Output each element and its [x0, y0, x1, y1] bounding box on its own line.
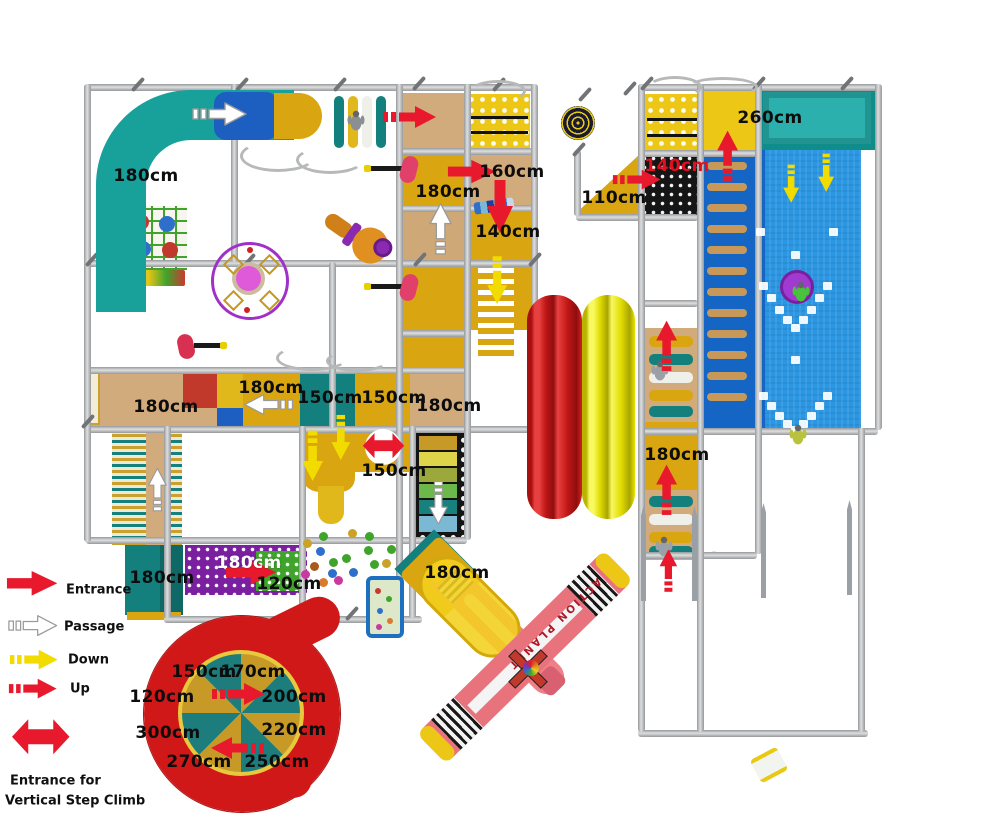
- block-blue: [217, 408, 243, 428]
- legend-entrance-label: Entrance: [66, 583, 131, 598]
- legend-note-line2: Vertical Step Climb: [5, 794, 145, 809]
- wall-step: [791, 324, 800, 332]
- wall-step: [815, 294, 824, 302]
- roller-piece: [750, 746, 789, 783]
- roller-bar: [649, 390, 693, 401]
- ladder-rung: [707, 309, 747, 317]
- wall-step: [767, 294, 776, 302]
- ladder-rung: [707, 372, 747, 380]
- climb-bar: [647, 134, 697, 137]
- passage-arrow: [146, 467, 168, 512]
- person-figure: [789, 424, 807, 446]
- playground-floorplan: ACTION PLANET En: [0, 0, 1000, 833]
- mini-ball: [387, 618, 393, 624]
- punch-bag: [398, 154, 420, 184]
- frame-rail: [875, 84, 882, 430]
- frame-rail: [464, 84, 471, 540]
- spin-target: [561, 106, 595, 140]
- punch-toy: [364, 154, 420, 186]
- scattered-ball: [316, 547, 325, 556]
- scattered-ball: [334, 576, 343, 585]
- wall-step: [756, 228, 765, 236]
- scattered-ball: [342, 554, 351, 563]
- scattered-ball: [310, 562, 319, 571]
- passage-arrow: [427, 481, 449, 526]
- down-arrow: [781, 164, 801, 204]
- measurement-label: 150cm: [297, 388, 362, 408]
- punch-tip: [364, 165, 371, 172]
- wall-step: [823, 392, 832, 400]
- scattered-ball: [387, 545, 396, 554]
- measurement-label: 180cm: [129, 568, 194, 588]
- measurement-label: 120cm: [129, 687, 194, 707]
- tube-slide-yellow-end: [274, 93, 322, 139]
- scattered-ball: [365, 532, 374, 541]
- wall-step: [791, 251, 800, 259]
- frame-rail: [697, 84, 704, 732]
- punch-tip: [220, 342, 227, 349]
- down-arrow: [816, 153, 836, 193]
- up-arrow: [654, 462, 681, 515]
- up-arrow: [654, 318, 681, 371]
- frame-rail: [755, 84, 762, 554]
- vclimb-arrow: [12, 718, 70, 756]
- up-arrow: [657, 548, 679, 593]
- ball-blower-unit: [366, 576, 404, 638]
- roller-bar: [334, 96, 344, 148]
- hanging-tube: [326, 350, 388, 372]
- climb-bar: [468, 131, 528, 134]
- measurement-label: 150cm: [361, 461, 426, 481]
- ladder-rung: [707, 183, 747, 191]
- scattered-ball: [329, 558, 338, 567]
- measurement-label: 180cm: [644, 445, 709, 465]
- ladder-rung: [707, 351, 747, 359]
- passage-arrow: [192, 100, 248, 128]
- measurement-label: 170cm: [220, 662, 285, 682]
- frame-rail: [84, 84, 91, 542]
- ladder-rung: [707, 330, 747, 338]
- measurement-label: 120cm: [256, 574, 321, 594]
- punch-toy: [364, 272, 420, 304]
- down-arrow: [329, 414, 353, 462]
- scattered-ball: [364, 546, 373, 555]
- scattered-ball: [370, 560, 379, 569]
- down-arrow: [484, 256, 509, 306]
- frame-brace: [578, 87, 592, 102]
- frame-post: [761, 503, 766, 598]
- punch-pole: [194, 343, 221, 348]
- measurement-label: 200cm: [261, 687, 326, 707]
- hanging-tube: [296, 146, 364, 174]
- cage-arc: [470, 80, 526, 102]
- measurement-label: 260cm: [737, 108, 802, 128]
- frame-rail: [398, 330, 466, 337]
- frame-post: [692, 506, 697, 601]
- person-figure: [347, 110, 365, 132]
- ladder-rung: [707, 267, 747, 275]
- mini-ball: [375, 588, 381, 594]
- ladder-rung: [707, 225, 747, 233]
- roller-bar: [649, 406, 693, 417]
- up-arrow: [8, 676, 58, 701]
- punch-tip: [364, 283, 371, 290]
- climb-bar: [468, 116, 528, 119]
- measurement-label: 180cm: [216, 553, 281, 573]
- cage-arc: [688, 77, 758, 97]
- measurement-label: 180cm: [415, 182, 480, 202]
- ladder-rung: [707, 246, 747, 254]
- scattered-ball: [319, 532, 328, 541]
- measurement-label: 140cm: [475, 222, 540, 242]
- legend-note-line1: Entrance for: [10, 774, 101, 789]
- wall-step: [759, 282, 768, 290]
- mini-ball: [377, 608, 383, 614]
- punch-pole: [370, 284, 402, 289]
- net-climb-column: [112, 428, 146, 545]
- scattered-ball: [382, 559, 391, 568]
- frame-brace: [623, 81, 637, 96]
- carousel: [211, 242, 289, 320]
- wall-step: [775, 306, 784, 314]
- measurement-label: 110cm: [581, 188, 646, 208]
- punch-toy: [178, 332, 230, 362]
- wall-step: [791, 356, 800, 364]
- frame-rail: [638, 300, 698, 307]
- yellow-dotted-panel: [645, 94, 699, 152]
- legend-up-label: Up: [70, 682, 90, 697]
- vclimb-arrow: [362, 432, 403, 459]
- frame-rail: [576, 214, 698, 221]
- carousel-dot: [247, 247, 253, 253]
- wall-step: [767, 402, 776, 410]
- ladder-rung: [707, 393, 747, 401]
- legend-down-label: Down: [68, 653, 109, 668]
- frame-rail: [164, 426, 171, 618]
- person-figure: [792, 281, 810, 303]
- wall-step: [823, 282, 832, 290]
- carousel-center: [236, 266, 261, 291]
- measurement-label: 180cm: [424, 563, 489, 583]
- frame-post: [847, 500, 852, 595]
- rainbow-ball: [523, 660, 539, 676]
- wall-step: [829, 228, 838, 236]
- red-wave-slide: [527, 295, 582, 519]
- measurement-label: 300cm: [135, 723, 200, 743]
- scattered-ball: [303, 539, 312, 548]
- climb-bar: [647, 118, 697, 121]
- mini-ball: [376, 624, 382, 630]
- measurement-label: 250cm: [244, 752, 309, 772]
- down-arrow: [9, 647, 59, 672]
- wall-step: [799, 316, 808, 324]
- wall-step: [783, 316, 792, 324]
- passage-arrow: [428, 201, 455, 254]
- measurement-label: 180cm: [133, 397, 198, 417]
- measurement-label: 220cm: [261, 720, 326, 740]
- scattered-ball: [348, 529, 357, 538]
- frame-rail: [638, 730, 868, 737]
- frame-post: [641, 506, 646, 601]
- frame-rail: [858, 428, 865, 732]
- measurement-label: 160cm: [479, 162, 544, 182]
- ladder-rung: [707, 204, 747, 212]
- scattered-ball: [349, 568, 358, 577]
- carousel-dot: [244, 307, 250, 313]
- entrance-arrow: [6, 570, 59, 597]
- yellow-wave-slide: [582, 295, 635, 519]
- mini-ball: [386, 596, 392, 602]
- carousel-seat: [259, 290, 280, 311]
- gold-drip-tongue: [318, 486, 344, 524]
- frame-rail: [574, 150, 581, 216]
- measurement-label: 180cm: [238, 378, 303, 398]
- strip-band: [419, 436, 457, 450]
- passage-arrow: [8, 613, 58, 638]
- wall-step: [775, 412, 784, 420]
- up-arrow: [382, 103, 438, 131]
- wall-step: [807, 412, 816, 420]
- punch-pole: [370, 166, 402, 171]
- top-yellow-dotted-climb-panel: [466, 94, 530, 150]
- measurement-label: 270cm: [166, 752, 231, 772]
- up-arrow: [211, 680, 267, 708]
- wall-step: [759, 392, 768, 400]
- measurement-label: 180cm: [113, 166, 178, 186]
- up-arrow: [715, 128, 742, 181]
- down-arrow: [300, 429, 327, 482]
- ladder-rung: [707, 288, 747, 296]
- legend-passage-label: Passage: [64, 620, 124, 635]
- punch-bag: [398, 272, 420, 302]
- wall-step: [815, 402, 824, 410]
- wall-step: [807, 306, 816, 314]
- measurement-label: 180cm: [416, 396, 481, 416]
- frame-rail: [86, 367, 467, 374]
- measurement-label: 140cm: [644, 156, 709, 176]
